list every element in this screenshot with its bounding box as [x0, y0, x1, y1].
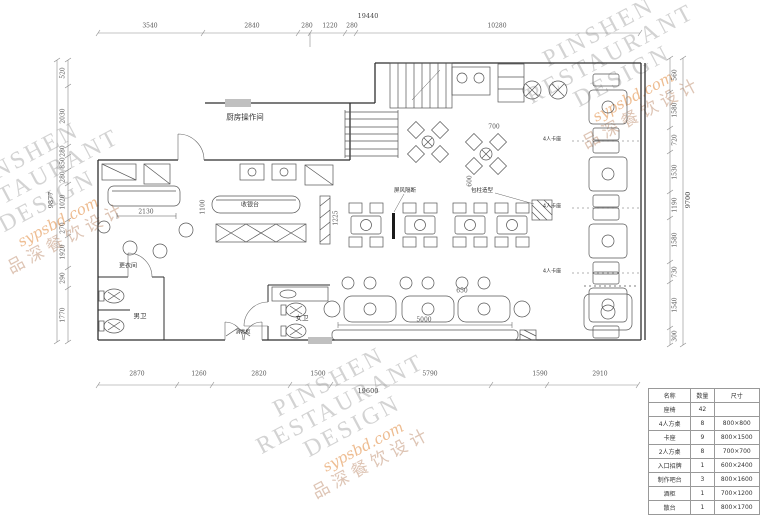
legend-cell: 入口招牌	[649, 459, 691, 473]
bottom-benches	[308, 277, 638, 344]
dim-label-bottom: 1260	[191, 371, 206, 378]
dim-label-right: 1540	[672, 297, 679, 312]
room-label-callout-right: 包柱造型	[471, 186, 493, 194]
dim-label-right: 730	[672, 266, 679, 277]
dim-label-top: 3540	[142, 23, 157, 30]
counter-area	[98, 186, 330, 258]
dim-label-right: 1530	[672, 164, 679, 179]
floor-plan-page: PINSHENRESTAURANTDESIGN sypsbd.com 品深餐饮设…	[0, 0, 760, 524]
legend-cell: 9	[691, 431, 714, 445]
dim-total-right: 9700	[684, 192, 692, 209]
room-label-women-wc: 女卫	[296, 312, 309, 322]
plan-dim-label: 1100	[200, 199, 207, 214]
legend-cell: 1	[691, 487, 714, 501]
booth-label: 4人卡座	[543, 136, 561, 143]
dim-label-bottom: 5790	[422, 371, 437, 378]
legend-header-cell: 尺寸	[714, 389, 760, 403]
legend-cell	[714, 403, 760, 417]
legend-cell: 1	[691, 459, 714, 473]
legend-cell: 600×2400	[714, 459, 760, 473]
dim-label-left: 280	[60, 145, 67, 156]
door-arcs	[128, 134, 268, 340]
dim-label-left: 280	[60, 171, 67, 182]
legend-header-cell: 名称	[649, 389, 691, 403]
legend-cell: 座椅	[649, 403, 691, 417]
dim-label-top: 1220	[322, 23, 337, 30]
plan-dim-label: 2130	[138, 209, 153, 216]
legend-row: 4人方桌8800×800	[649, 417, 760, 431]
dim-label-left: 290	[60, 272, 67, 283]
legend-cell: 1	[691, 501, 714, 515]
dim-label-left: 270	[60, 222, 67, 233]
legend-cell: 卡座	[649, 431, 691, 445]
legend-row: 制作吧台3800×1600	[649, 473, 760, 487]
plan-dim-label: 5000	[416, 317, 431, 324]
room-label-men-wc: 男卫	[134, 310, 147, 320]
dim-label-top: 280	[346, 23, 357, 30]
dim-label-right: 560	[672, 69, 679, 80]
legend-header-row: 名称数量尺寸	[649, 389, 760, 403]
legend-cell: 散台	[649, 501, 691, 515]
booth-seating	[572, 74, 640, 338]
legend-cell: 700×1200	[714, 487, 760, 501]
legend-cell: 2人方桌	[649, 445, 691, 459]
plan-dim-label: 1225	[333, 210, 340, 225]
legend-cell: 酒柜	[649, 487, 691, 501]
plan-dim-label: 700	[488, 124, 499, 131]
kitchen-equipment	[102, 64, 567, 220]
dim-label-bottom: 1500	[310, 371, 325, 378]
legend-cell: 42	[691, 403, 714, 417]
legend-cell: 8	[691, 417, 714, 431]
legend-cell: 4人方桌	[649, 417, 691, 431]
dim-label-right: 1580	[672, 232, 679, 247]
dim-label-right: 720	[672, 134, 679, 145]
legend-cell: 700×700	[714, 445, 760, 459]
room-label-dressing: 更衣间	[119, 261, 137, 270]
dim-label-left: 1920	[60, 244, 67, 259]
dim-label-bottom: 2870	[129, 371, 144, 378]
dim-label-right: 300	[672, 330, 679, 341]
dim-label-left: 850	[60, 157, 67, 168]
legend-row: 酒柜1700×1200	[649, 487, 760, 501]
plan-dim-label: 600	[467, 175, 474, 186]
dining-tables	[349, 109, 534, 247]
room-label-callout-left: 屏风隔断	[394, 186, 416, 194]
legend-row: 2人方桌8700×700	[649, 445, 760, 459]
legend-cell: 800×800	[714, 417, 760, 431]
staircase	[345, 63, 452, 158]
legend-cell: 制作吧台	[649, 473, 691, 487]
room-label-sterilizer: 消毒柜	[235, 329, 250, 336]
dim-label-left: 1020	[60, 194, 67, 209]
dim-label-bottom: 2910	[592, 371, 607, 378]
booth-label: 4人卡座	[543, 268, 561, 275]
legend-table: 名称数量尺寸 座椅424人方桌8800×800卡座9800×15002人方桌87…	[648, 388, 760, 515]
dim-label-bottom: 2820	[251, 371, 266, 378]
dim-label-left: 520	[60, 67, 67, 78]
legend-cell: 800×1700	[714, 501, 760, 515]
legend-cell: 8	[691, 445, 714, 459]
legend-header-cell: 数量	[691, 389, 714, 403]
room-label-kitchen: 厨房操作间	[226, 112, 264, 123]
legend-row: 卡座9800×1500	[649, 431, 760, 445]
legend-cell: 800×1500	[714, 431, 760, 445]
dim-label-bottom: 1590	[532, 371, 547, 378]
booth-label: 4人卡座	[543, 203, 561, 210]
legend-cell: 800×1600	[714, 473, 760, 487]
dim-label-right: 1190	[672, 197, 679, 212]
room-label-cashier: 收银台	[241, 200, 259, 209]
dim-label-left: 2030	[60, 108, 67, 123]
legend-row: 散台1800×1700	[649, 501, 760, 515]
dim-total-top: 19440	[358, 12, 379, 20]
dim-label-top: 280	[301, 23, 312, 30]
pass-window	[225, 99, 251, 107]
dim-label-left: 1770	[60, 307, 67, 322]
dim-total-left: 9877	[47, 192, 55, 209]
floor-plan-drawing	[0, 0, 760, 524]
dim-label-right: 1580	[672, 102, 679, 117]
dim-label-top: 10280	[487, 23, 506, 30]
dim-total-bottom: 19600	[358, 387, 379, 395]
dim-label-top: 2840	[244, 23, 259, 30]
legend-row: 座椅42	[649, 403, 760, 417]
plan-dim-label: 650	[456, 288, 467, 295]
legend-cell: 3	[691, 473, 714, 487]
legend-row: 入口招牌1600×2400	[649, 459, 760, 473]
